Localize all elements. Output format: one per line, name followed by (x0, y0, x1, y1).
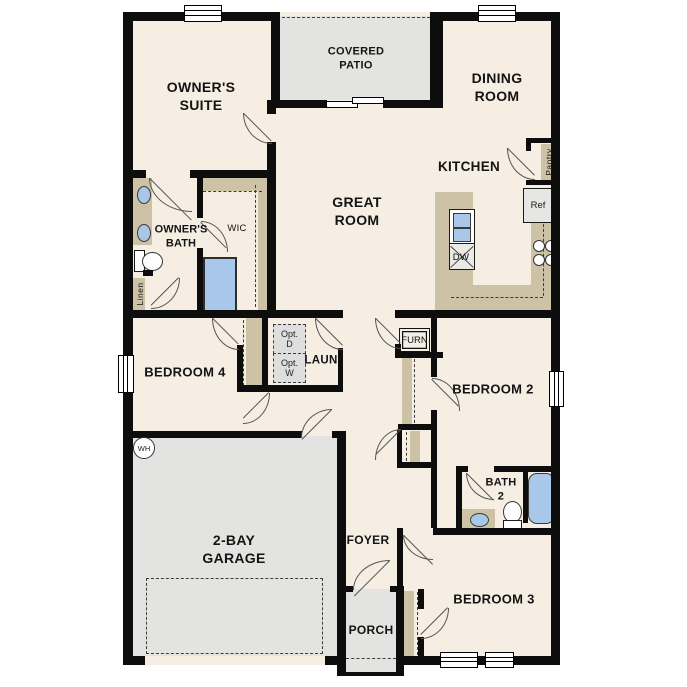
room-label-owners-bath: OWNER'SBATH (155, 223, 208, 252)
room-label-owners-suite: OWNER'SSUITE (167, 78, 235, 114)
wall (237, 345, 243, 385)
label-linen: Linen (135, 282, 145, 305)
wall (403, 656, 560, 665)
room-label-garage: 2-BAYGARAGE (202, 531, 265, 567)
sliding-door-icon (352, 97, 384, 104)
stove-burner-icon (533, 240, 545, 252)
opt-dryer-label: Opt. (281, 329, 298, 339)
wall (123, 656, 145, 665)
wall (123, 310, 343, 318)
furn-label: FURN (401, 335, 427, 346)
bedroom4-closet-rod (243, 320, 244, 386)
wall (267, 100, 276, 114)
wall (271, 12, 280, 108)
toilet-bowl-icon (142, 252, 163, 271)
shower-icon (203, 257, 237, 312)
room-label-laundry: LAUN (304, 354, 337, 369)
hall-closet-rod (406, 432, 407, 461)
wall (123, 170, 146, 178)
patio-roof-dashed-line (282, 17, 430, 18)
ref-label: Ref (531, 200, 546, 211)
room-label-covered-patio: COVEREDPATIO (328, 45, 385, 74)
bath-sink-icon (137, 224, 151, 242)
wall (397, 462, 432, 468)
label-dishwasher: DW (453, 252, 469, 264)
wall (262, 318, 268, 390)
wall (418, 637, 424, 661)
wall (190, 170, 270, 178)
room-label-dining-room: DININGROOM (472, 69, 523, 105)
porch-edge-dashed (346, 658, 396, 659)
wall (267, 142, 276, 318)
wall (456, 528, 556, 535)
room-label-bedroom2: BEDROOM 2 (452, 382, 533, 399)
wall (456, 466, 462, 534)
water-heater-icon: WH (133, 437, 155, 459)
window-icon (118, 355, 134, 393)
stove-burner-icon (533, 254, 545, 266)
wall (523, 471, 528, 523)
bath2-sink-icon (470, 513, 489, 527)
wall (337, 586, 353, 592)
window-icon (485, 652, 514, 668)
room-label-bedroom3: BEDROOM 3 (453, 592, 534, 609)
room-label-wic: WIC (227, 223, 246, 235)
window-icon (549, 371, 564, 407)
opt-washer-box: Opt.W (273, 353, 306, 383)
hall-closet-shelf (410, 431, 420, 462)
wall (398, 424, 437, 430)
sink-basin-icon (453, 228, 471, 242)
wall (123, 12, 133, 665)
window-icon (478, 5, 516, 22)
bedroom2-closet-shelf (402, 358, 412, 424)
wic-rod-top (203, 191, 262, 192)
wall (433, 528, 461, 535)
wall (418, 589, 424, 609)
opt-washer-label: Opt. (281, 358, 298, 368)
wh-label: WH (138, 444, 151, 453)
furnace-icon: FURN (399, 328, 430, 352)
room-label-great-room: GREATROOM (332, 193, 381, 229)
wall (338, 348, 343, 392)
window-icon (440, 652, 478, 668)
wall (397, 533, 403, 591)
window-icon (184, 5, 222, 22)
floor-plan: Opt.D Opt.W Ref FURN (0, 0, 687, 687)
room-label-kitchen: KITCHEN (438, 158, 500, 176)
wall (143, 270, 153, 276)
wall (197, 178, 203, 218)
room-label-porch: PORCH (349, 623, 394, 639)
room-label-bedroom4: BEDROOM 4 (144, 365, 225, 382)
label-pantry: Pantry (544, 148, 554, 176)
wall (431, 313, 437, 377)
wic-rod-right (255, 185, 256, 307)
wall (337, 672, 404, 676)
bath-sink-icon (137, 186, 151, 204)
room-label-foyer: FOYER (347, 533, 390, 549)
wall (430, 12, 443, 108)
wall (396, 586, 404, 676)
wall (271, 100, 327, 108)
wall (395, 310, 556, 318)
wall (551, 12, 560, 665)
sink-basin-icon (453, 213, 471, 228)
wall (237, 385, 343, 392)
kitchen-counter-overhang-dashed (451, 297, 543, 298)
bedroom4-closet-shelf (246, 318, 262, 385)
opt-dryer-box: Opt.D (273, 324, 306, 354)
wall (383, 100, 443, 108)
wall (197, 248, 203, 310)
wall (526, 180, 560, 185)
wic-shelf-right (258, 183, 267, 310)
wall (123, 431, 302, 438)
garage-door-dashed-outline (146, 578, 323, 654)
wall (526, 138, 560, 143)
room-label-bath2: BATH2 (486, 476, 517, 505)
refrigerator-icon: Ref (523, 188, 553, 223)
wall (337, 431, 346, 676)
bedroom2-closet-rod (414, 359, 415, 423)
